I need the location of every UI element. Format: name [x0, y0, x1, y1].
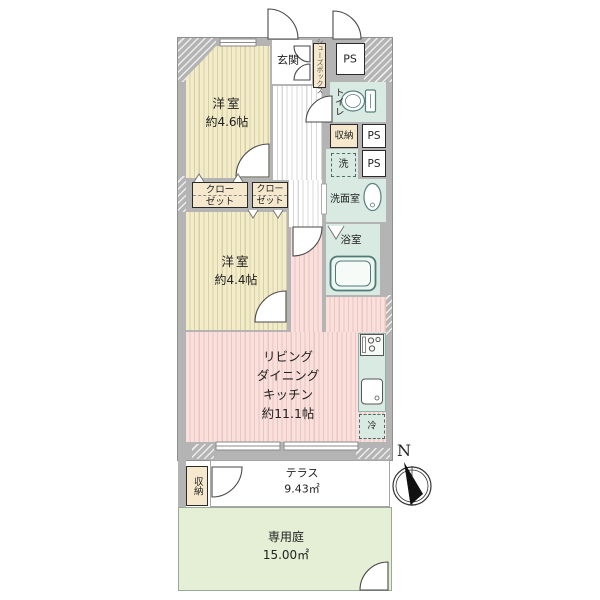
ps2-label: PS	[368, 131, 381, 142]
closet2-line1: クロー	[256, 186, 283, 195]
toilet-label: トイレ	[333, 88, 343, 117]
ldk-line4: 約11.1帖	[262, 408, 315, 421]
laundry-label: 洗	[339, 160, 349, 170]
entrance-label: 玄関	[277, 55, 299, 66]
ldk-line2: ダイニング	[257, 370, 320, 383]
washroom-label: 洗面室	[330, 195, 360, 205]
room-bedroom1	[186, 46, 270, 178]
closet1-line1: クロー	[206, 185, 235, 195]
ldk-line3: キッチン	[263, 389, 313, 402]
hallway-upper	[273, 86, 322, 180]
compass-north-label: N	[397, 443, 411, 459]
ps1-label: PS	[343, 54, 357, 65]
closet2-line2: ゼット	[256, 198, 283, 207]
floor-plan: 洋室 約4.6帖 玄関 シューズボックス PS トイレ 収納 PS 洗 PS 洗…	[0, 0, 600, 600]
storage-mid-label: 収納	[334, 131, 353, 141]
closet1-line2: ゼット	[206, 197, 235, 207]
room-ldk-arm	[291, 227, 322, 332]
bedroom1-size: 約4.6帖	[205, 116, 248, 128]
wall-hatch-left-mid	[178, 176, 186, 212]
room-ldk-right	[326, 297, 386, 332]
garden-label: 専用庭	[268, 531, 304, 543]
garden-area: 15.00㎡	[263, 549, 309, 561]
ldk-line1: リビング	[263, 351, 313, 364]
ps3-label: PS	[368, 159, 381, 170]
terrace-label: テラス	[286, 468, 319, 479]
bedroom2-size: 約4.4帖	[214, 274, 257, 286]
bath-label: 浴室	[341, 235, 362, 246]
entrance-door-left-arc	[268, 9, 298, 39]
bedroom1-name: 洋室	[212, 98, 241, 111]
terrace-area: 9.43㎡	[284, 484, 320, 495]
kitchen-counter	[358, 333, 386, 412]
room-bedroom2	[186, 212, 287, 330]
fridge-label: 冷	[367, 423, 376, 432]
left-wall-extension	[178, 460, 186, 507]
hallway-lower	[289, 180, 322, 227]
storage-terrace-label: 収納	[192, 477, 202, 496]
wall-hatch-bottom-right	[356, 448, 390, 459]
entrance-door-right-arc	[333, 11, 361, 39]
bedroom2-name: 洋室	[221, 256, 250, 269]
wall-hatch-top-right	[364, 38, 392, 82]
wall-hatch-bottom-left	[192, 444, 214, 459]
shoebox-label: シューズボックス	[316, 38, 323, 94]
compass-icon	[393, 462, 431, 506]
